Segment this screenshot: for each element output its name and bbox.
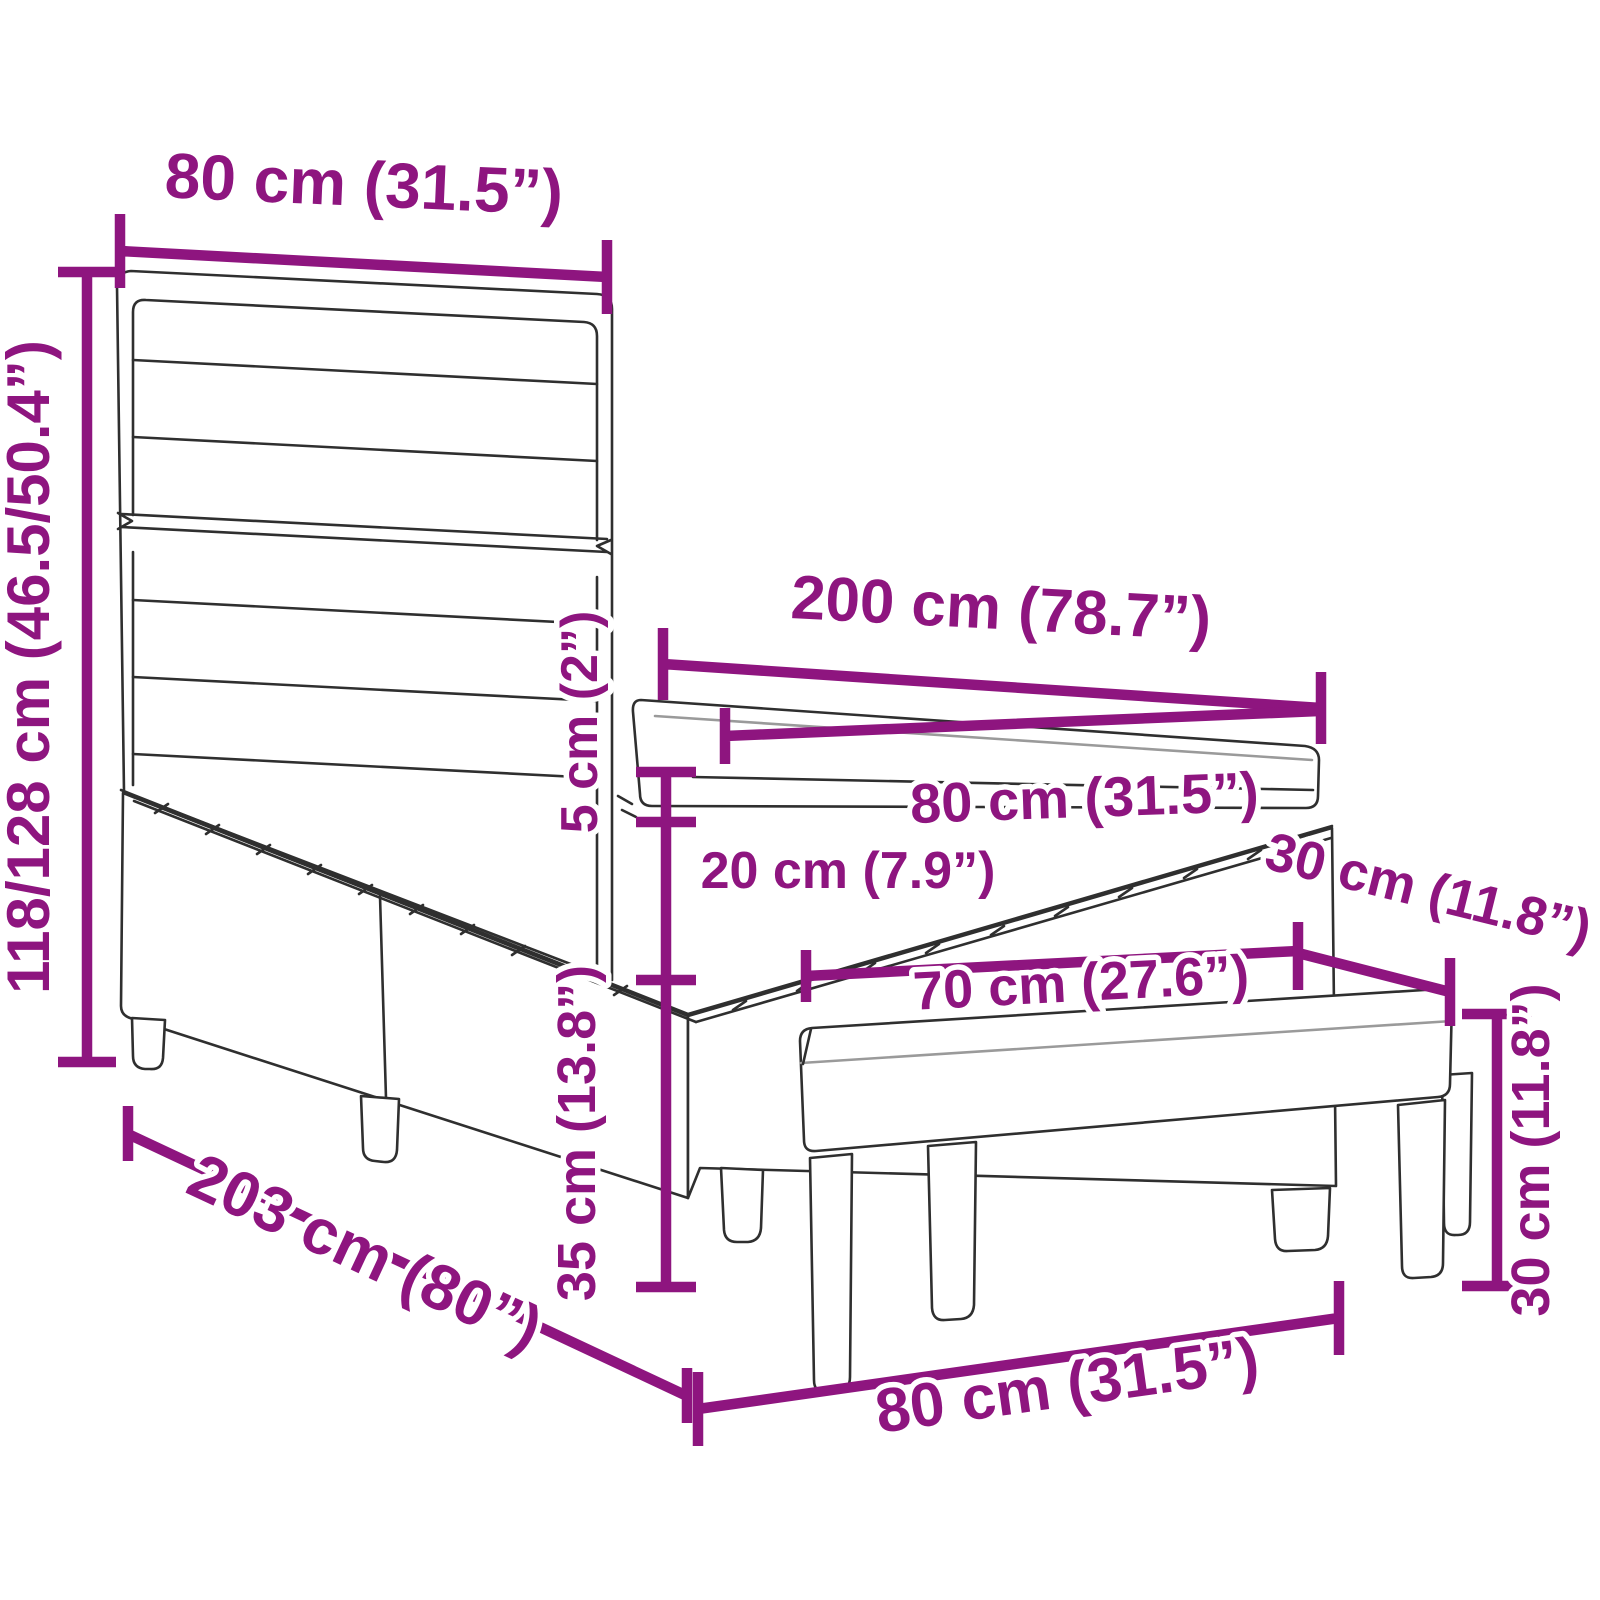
bed-leg [361, 1096, 399, 1162]
headboard-stripe [133, 754, 597, 778]
bench [800, 989, 1472, 1392]
bed-leg [1272, 1188, 1330, 1251]
dimension-label-bed-width: 80 cm (31.5”) [871, 1325, 1263, 1447]
bench-leg-front-left [810, 1154, 852, 1392]
dimension-label-headboard-height: 118/128 cm (46.5/50.4”) [0, 340, 62, 994]
mattress-corner-hatch [618, 796, 636, 817]
headboard-stripe [133, 437, 597, 461]
diagram-canvas: 80 cm (31.5”) 118/128 cm (46.5/50.4”) 20… [0, 0, 1600, 1600]
dim-bench-height: 30 cm (11.8”) [1462, 983, 1561, 1316]
dimension-label-bed-length: 200 cm (78.7”) [789, 563, 1213, 654]
bed-dimension-diagram: 80 cm (31.5”) 118/128 cm (46.5/50.4”) 20… [0, 0, 1600, 1600]
bed-leg [721, 1168, 763, 1242]
bed-leg [132, 1018, 165, 1069]
bench-leg-rear-left [928, 1142, 976, 1320]
headboard-stripe [133, 360, 597, 384]
dim-line [120, 214, 607, 314]
dimension-label-headboard-width: 80 cm (31.5”) [163, 139, 564, 228]
dimension-label-bench-height: 30 cm (11.8”) [1501, 983, 1561, 1316]
dim-headboard-width: 80 cm (31.5”) [120, 139, 607, 314]
bench-leg-rear-right [1442, 1073, 1472, 1235]
headboard-stripe [133, 600, 597, 624]
headboard-inner-top-panel [133, 300, 597, 540]
dim-bed-width: 80 cm (31.5”) [698, 1281, 1339, 1447]
bench-leg-front-right [1398, 1100, 1445, 1278]
headboard-stripe [133, 677, 597, 701]
dim-line [58, 272, 116, 1062]
dim-headboard-height: 118/128 cm (46.5/50.4”) [0, 272, 116, 1062]
dimension-label-mattress-width: 80 cm (31.5”) [909, 760, 1260, 835]
dimension-label-base-length: 203 cm (80”) [178, 1139, 553, 1365]
dimension-label-topper-thickness: 5 cm (2”) [551, 611, 609, 834]
dimension-label-mattress-thickness: 20 cm (7.9”) [701, 842, 996, 900]
dimension-label-base-height: 35 cm (13.8”) [547, 965, 607, 1301]
headboard-seam [118, 513, 611, 554]
